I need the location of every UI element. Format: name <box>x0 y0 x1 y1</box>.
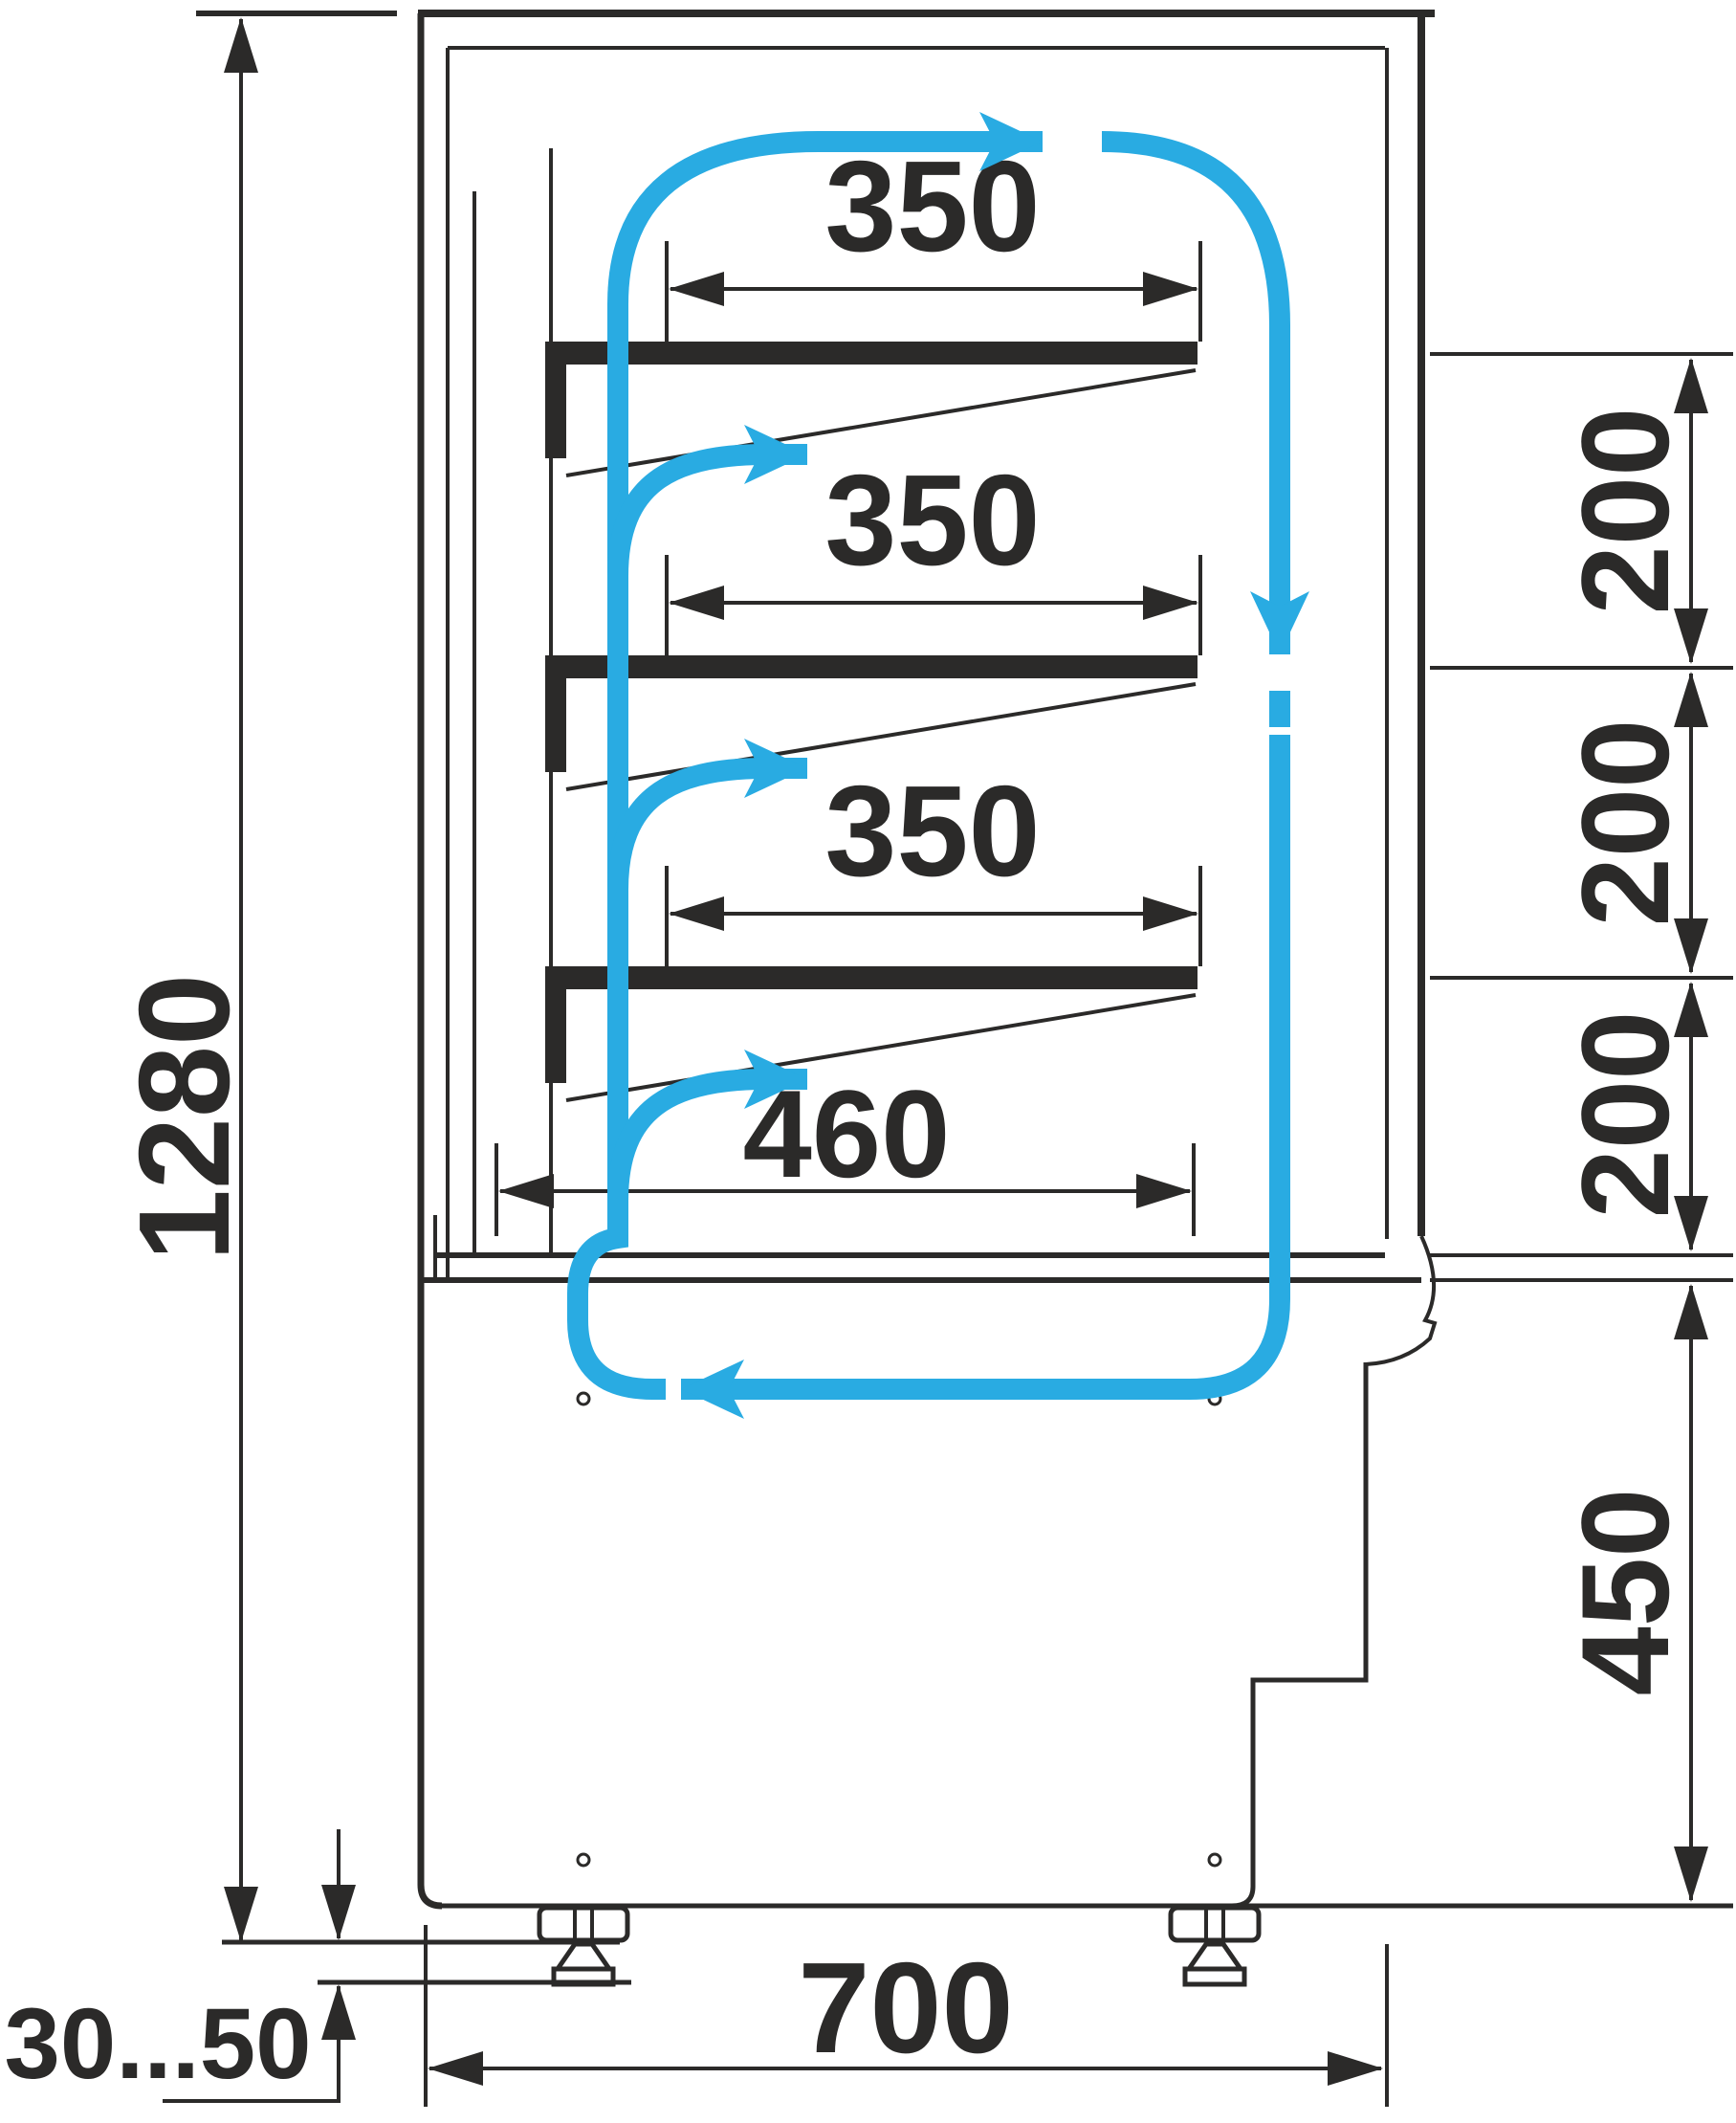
foot-right <box>1171 1908 1259 1984</box>
shelf-bracket-upright <box>545 342 566 458</box>
panel-screw-icon <box>1209 1854 1220 1866</box>
panel-screw-icon <box>578 1854 589 1866</box>
airflow-shelf-1-outlet-icon <box>618 454 807 576</box>
foot-mount-block <box>1171 1908 1259 1940</box>
shelf-surface <box>564 966 1198 989</box>
dim-label-base-height: 450 <box>1555 1489 1695 1696</box>
dim-label-gap-3: 200 <box>1555 1011 1695 1219</box>
shelf-surface <box>564 655 1198 678</box>
panel-screw-icon <box>578 1393 589 1404</box>
airflow-shelf-2-outlet-icon <box>618 768 807 890</box>
dim-label-shelf-2-depth: 350 <box>824 448 1040 592</box>
foot-mount-block <box>539 1908 627 1940</box>
left-wall-outer <box>421 13 442 1906</box>
dimension-lines <box>163 19 1733 2107</box>
foot-cone <box>558 1944 609 1969</box>
display-case-schematic: 1280 350 350 350 460 200 200 200 450 700… <box>0 0 1736 2123</box>
foot-cone <box>1189 1944 1241 1969</box>
dim-label-shelf-3-depth: 350 <box>824 759 1040 903</box>
dim-label-gap-1: 200 <box>1555 408 1695 615</box>
dim-label-gap-2: 200 <box>1555 719 1695 927</box>
base-right-edge <box>1232 1362 1366 1906</box>
dim-label-base-depth: 700 <box>798 1935 1013 2080</box>
shelf-bracket-upright <box>545 655 566 772</box>
dim-label-foot-adjust: 30...50 <box>4 1988 311 2100</box>
shelf-bracket-upright <box>545 966 566 1083</box>
dim-label-shelf-1-depth: 350 <box>824 134 1040 278</box>
foot-plate <box>1185 1969 1244 1984</box>
shelf-surface <box>564 342 1198 365</box>
case-structure <box>196 13 1733 1906</box>
airflow-right-descent-arrow-icon <box>1102 142 1280 654</box>
dim-label-overall-height: 1280 <box>112 974 256 1261</box>
drawing-canvas: 1280 350 350 350 460 200 200 200 450 700… <box>0 0 1736 2123</box>
foot-left <box>539 1908 627 1984</box>
